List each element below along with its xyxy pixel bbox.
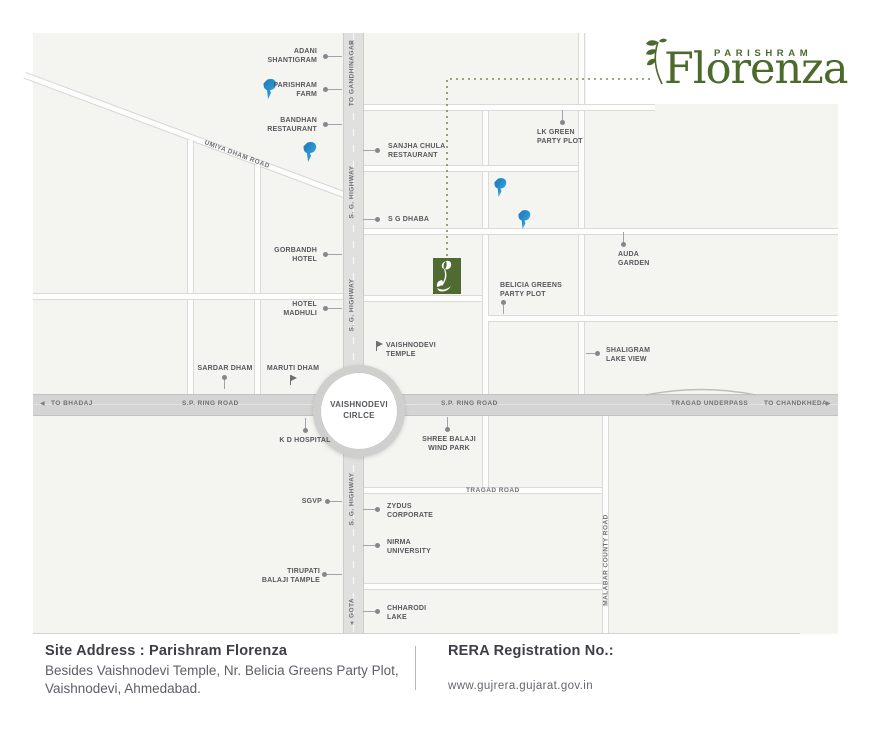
rera-title: RERA Registration No.: [448, 643, 614, 659]
project-name: Florenza [664, 48, 847, 91]
marker-leader [328, 124, 342, 125]
landmark-bandhan-restaurant: BANDHAN RESTAURANT [267, 116, 317, 134]
arrow-left-icon: ◀ [40, 401, 45, 407]
marker-pin [224, 380, 225, 389]
marker-leader [363, 545, 375, 546]
dotted-route-line [447, 79, 650, 256]
landmark-zydus: ZYDUS CORPORATE [387, 502, 433, 520]
flag-icon [290, 375, 291, 385]
marker-leader [363, 509, 375, 510]
marker-leader [328, 254, 342, 255]
landmark-nirma: NIRMA UNIVERSITY [387, 538, 431, 556]
parishram-p-icon [517, 209, 532, 230]
road-label-tragad-underpass: TRAGAD UNDERPASS [671, 400, 748, 407]
road-label-gota: GOTA [349, 598, 356, 618]
marker-leader [586, 353, 595, 354]
road-label-to-gandhinagar: TO GANDHINAGAR [349, 40, 356, 107]
landmark-hotel-madhuli: HOTEL MADHULI [283, 300, 317, 318]
landmark-belicia-greens: BELICIA GREENS PARTY PLOT [500, 281, 562, 299]
road-label-sp-ring-right: S.P. RING ROAD [441, 400, 498, 407]
marker-dot [303, 428, 308, 433]
marker-dot [621, 242, 626, 247]
underpass-arc [646, 390, 756, 396]
location-map-page: UMIYA DHAM ROAD TO GANDHINAGAR ▲ S. G. H… [0, 0, 871, 739]
marker-leader [330, 501, 342, 502]
arrow-up-icon: ▲ [349, 40, 355, 46]
landmark-gorbandh-hotel: GORBANDH HOTEL [274, 246, 317, 264]
marker-pin [562, 110, 563, 120]
marker-dot [560, 120, 565, 125]
landmark-shaligram: SHALIGRAM LAKE VIEW [606, 346, 650, 364]
landmark-auda-garden: AUDA GARDEN [618, 250, 650, 268]
parishram-p-icon [493, 177, 508, 198]
footer-vertical-divider [415, 646, 416, 690]
road-label-sp-ring-left: S.P. RING ROAD [182, 400, 239, 407]
arrow-right-icon: ▶ [826, 401, 831, 407]
arrow-down-icon: ▼ [349, 621, 355, 627]
marker-dot [375, 507, 380, 512]
marker-pin [305, 418, 306, 428]
marker-pin [503, 305, 504, 314]
marker-dot [375, 217, 380, 222]
road-label-tragad-road: TRAGAD ROAD [466, 487, 520, 494]
marker-leader [363, 219, 375, 220]
footer-divider-line [33, 633, 800, 634]
landmark-tirupati: TIRUPATI BALAJI TAMPLE [262, 567, 320, 585]
landmark-sg-dhaba: S G DHABA [388, 215, 429, 224]
marker-dot [375, 543, 380, 548]
road-label-malabar: MALABAR COUNTY ROAD [603, 514, 610, 605]
vaishnodevi-circle-label: VAISHNODEVI CIRLCE [330, 400, 388, 421]
marker-leader [328, 89, 342, 90]
marker-dot [375, 148, 380, 153]
marker-pin [623, 232, 624, 242]
marker-dot [375, 609, 380, 614]
footer: Site Address : Parishram Florenza Beside… [0, 634, 871, 739]
marker-leader [328, 56, 342, 57]
rera-url[interactable]: www.gujrera.gujarat.gov.in [448, 680, 593, 692]
site-marker [433, 258, 461, 294]
parishram-p-icon [302, 141, 318, 163]
marker-leader [327, 574, 342, 575]
site-address-title: Site Address : Parishram Florenza [45, 643, 287, 659]
road-label-to-bhadaj: TO BHADAJ [51, 400, 93, 407]
landmark-sgvp: SGVP [302, 497, 322, 506]
landmark-parishram-farm: PARISHRAM FARM [273, 81, 317, 99]
road-label-sg-highway-2: S. G. HIGHWAY [349, 279, 356, 332]
site-address-body: Besides Vaishnodevi Temple, Nr. Belicia … [45, 662, 399, 698]
landmark-maruti-dham: MARUTI DHAM [267, 364, 319, 373]
marker-dot [595, 351, 600, 356]
marker-leader [363, 611, 375, 612]
landmark-vaishnodevi-temple: VAISHNODEVI TEMPLE [386, 341, 436, 359]
landmark-shree-balaji: SHREE BALAJI WIND PARK [422, 435, 476, 453]
road-label-to-chandkheda: TO CHANDKHEDA [764, 400, 827, 407]
marker-leader [363, 150, 375, 151]
landmark-kd-hospital: K D HOSPITAL [279, 436, 330, 445]
landmark-sanjha-chula: SANJHA CHULA RESTAURANT [388, 142, 445, 160]
landmark-adani-shantigram: ADANI SHANTIGRAM [268, 47, 317, 65]
road-label-sg-highway-3: S. G. HIGHWAY [349, 473, 356, 526]
landmark-sardar-dham: SARDAR DHAM [197, 364, 252, 373]
brand-logo: PARISHRAM Florenza [638, 36, 823, 111]
flower-icon [433, 258, 461, 294]
landmark-chharodi: CHHARODI LAKE [387, 604, 426, 622]
marker-dot [445, 427, 450, 432]
road-label-sg-highway-1: S. G. HIGHWAY [349, 166, 356, 219]
landmark-lk-green: LK GREEN PARTY PLOT [537, 128, 583, 146]
flag-icon [376, 341, 377, 351]
marker-pin [447, 417, 448, 427]
marker-leader [328, 308, 342, 309]
